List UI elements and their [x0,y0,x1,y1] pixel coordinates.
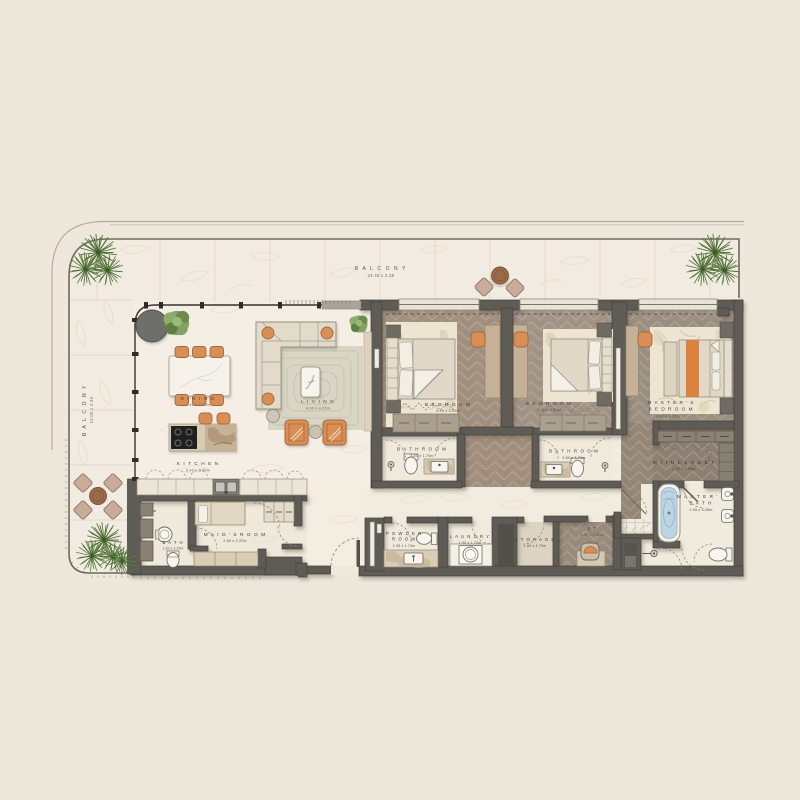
svg-text:2.90 x 2.90m: 2.90 x 2.90m [672,467,695,471]
svg-text:B A L C O N Y: B A L C O N Y [82,384,88,436]
svg-text:B A T H: B A T H [162,540,183,545]
svg-text:3.95 x 4.05m: 3.95 x 4.05m [436,409,460,413]
svg-text:1.20 x 2.37m: 1.20 x 2.37m [163,547,184,551]
svg-text:R O O M: R O O M [392,537,416,542]
svg-text:M A S T E R ' S: M A S T E R ' S [648,400,695,405]
svg-text:4.60 x 4.25m: 4.60 x 4.25m [656,415,680,419]
svg-text:D I N I N G: D I N I N G [180,396,215,401]
svg-text:2.60 x 2.37m: 2.60 x 2.37m [223,539,246,543]
svg-text:2.05 x 1.70m: 2.05 x 1.70m [393,544,416,548]
svg-text:10.00 x 2.33: 10.00 x 2.33 [89,396,94,423]
svg-text:B A L C O N Y: B A L C O N Y [355,266,407,272]
svg-text:4.40 x 2.75m: 4.40 x 2.75m [186,403,210,407]
svg-text:B A T H R O O M: B A T H R O O M [397,447,447,452]
svg-text:L A U N D R Y: L A U N D R Y [450,534,490,539]
svg-text:4.30 x 4.25m: 4.30 x 4.25m [306,407,330,411]
svg-text:W / I N C L O S E T: W / I N C L O S E T [653,460,716,465]
svg-text:2.95 x 3.05m: 2.95 x 3.05m [689,508,712,512]
svg-text:24.40 x 2.35: 24.40 x 2.35 [368,273,395,278]
svg-text:M A S T E R ' S: M A S T E R ' S [677,494,725,499]
svg-text:1.60 x 1.70m: 1.60 x 1.70m [524,544,547,548]
svg-text:S T: S T [587,526,597,531]
svg-text:B E D R O O M: B E D R O O M [648,407,693,412]
svg-text:3.60 x 4.00m: 3.60 x 4.00m [537,408,561,412]
svg-text:5.40 x 3.60m: 5.40 x 3.60m [186,469,210,473]
svg-text:P O W D E R: P O W D E R [386,531,422,536]
svg-text:1.90 x 1.80m: 1.90 x 1.80m [581,533,604,537]
svg-text:B E D R O O M: B E D R O O M [425,402,471,407]
svg-text:B E D R O O M: B E D R O O M [526,401,572,406]
svg-text:K I T C H E N: K I T C H E N [177,461,220,466]
svg-text:1.90 x 1.70m: 1.90 x 1.70m [459,541,482,545]
svg-text:S T O R A G E: S T O R A G E [515,537,556,542]
svg-text:M A I D ' S R O O M: M A I D ' S R O O M [204,532,266,537]
svg-text:3.60 x 1.70m: 3.60 x 1.70m [410,454,433,458]
svg-text:3.60 x 1.70m: 3.60 x 1.70m [562,456,585,460]
svg-text:L I V I N G: L I V I N G [301,399,335,404]
